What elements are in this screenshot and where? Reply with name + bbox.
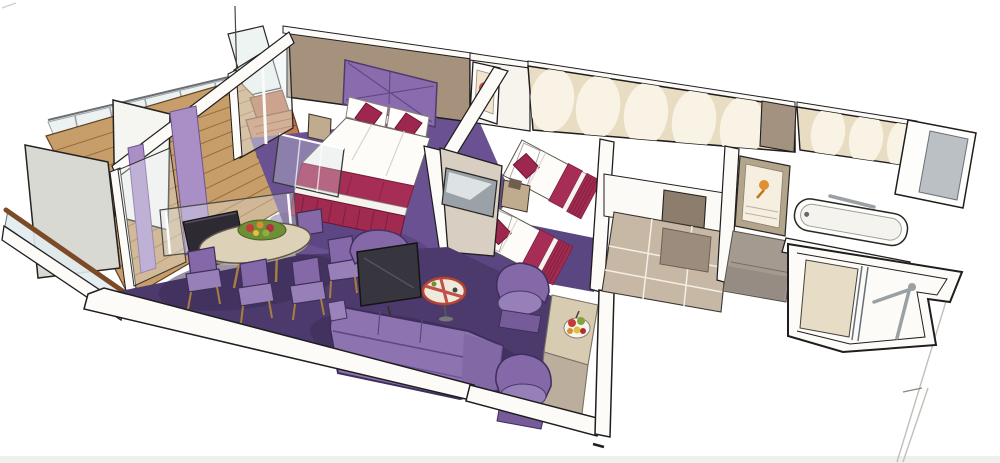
grab-bar-knob <box>908 283 916 291</box>
vanity-mirror-cabinet <box>735 156 790 236</box>
end-wall <box>895 120 976 208</box>
bottom-shadow-band <box>0 456 1000 463</box>
shower-floor <box>800 260 858 337</box>
suite-illustration <box>0 0 1000 463</box>
wardrobe-panel <box>760 101 796 152</box>
corridor <box>602 174 731 312</box>
floral-centerpiece <box>238 220 286 240</box>
gray-tile-floor <box>723 231 793 302</box>
suite-floorplan-illustration <box>0 0 1000 463</box>
